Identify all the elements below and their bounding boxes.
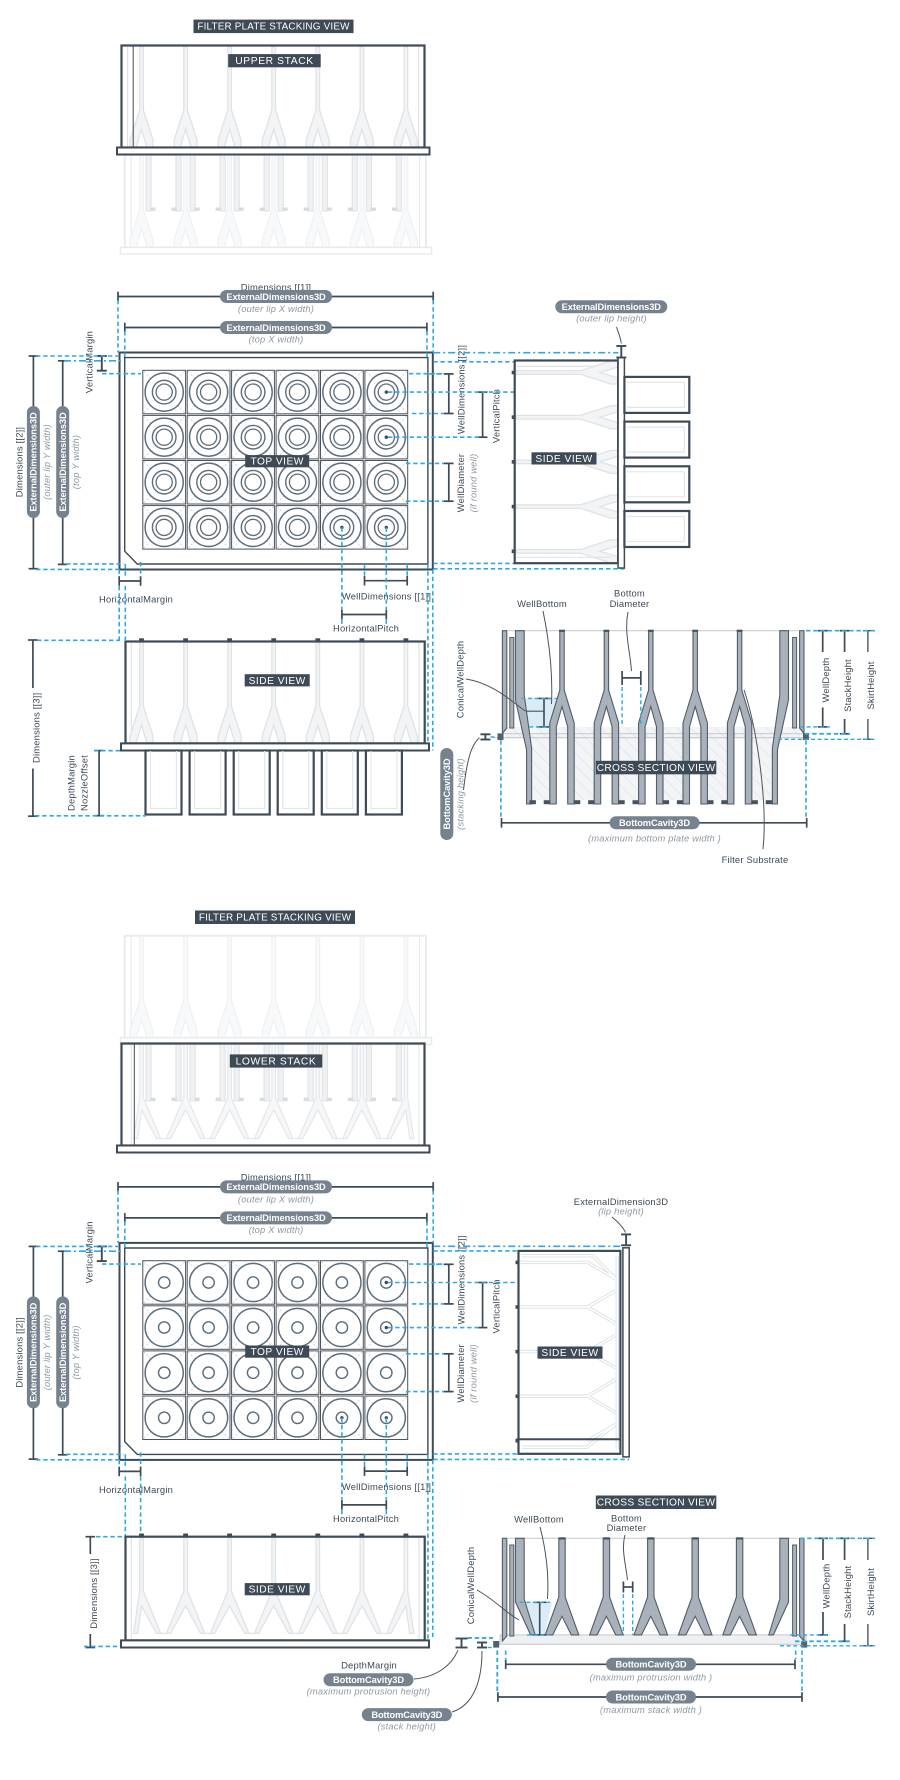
svg-text:WellBottom: WellBottom bbox=[514, 1514, 564, 1525]
svg-text:HorizontalPitch: HorizontalPitch bbox=[333, 623, 399, 634]
svg-text:(lip height): (lip height) bbox=[598, 1207, 644, 1217]
svg-text:Filter Substrate: Filter Substrate bbox=[722, 854, 789, 865]
svg-text:SIDE VIEW: SIDE VIEW bbox=[535, 454, 592, 465]
svg-text:VerticalPitch: VerticalPitch bbox=[490, 389, 501, 443]
svg-text:Dimensions [[3]]: Dimensions [[3]] bbox=[88, 1558, 99, 1628]
svg-text:BottomCavity3D: BottomCavity3D bbox=[442, 758, 452, 829]
svg-text:TOP VIEW: TOP VIEW bbox=[250, 1347, 303, 1358]
svg-text:DepthMargin: DepthMargin bbox=[66, 755, 77, 811]
svg-text:(top X width): (top X width) bbox=[249, 1225, 304, 1235]
svg-text:Diameter: Diameter bbox=[610, 598, 650, 609]
svg-text:WellDepth: WellDepth bbox=[820, 658, 831, 703]
svg-text:LOWER STACK: LOWER STACK bbox=[236, 1057, 317, 1068]
svg-text:ExternalDimension3D: ExternalDimension3D bbox=[574, 1196, 668, 1207]
svg-text:ExternalDimensions3D: ExternalDimensions3D bbox=[226, 323, 326, 333]
svg-text:VerticalMargin: VerticalMargin bbox=[84, 1221, 95, 1283]
svg-text:(outer lip Y width): (outer lip Y width) bbox=[42, 424, 52, 500]
svg-text:SIDE VIEW: SIDE VIEW bbox=[249, 676, 306, 687]
svg-text:ExternalDimensions3D: ExternalDimensions3D bbox=[562, 302, 662, 312]
svg-text:BottomCavity3D: BottomCavity3D bbox=[616, 1692, 687, 1702]
svg-text:ExternalDimensions3D: ExternalDimensions3D bbox=[58, 412, 68, 512]
svg-text:UPPER STACK: UPPER STACK bbox=[235, 56, 314, 67]
svg-text:(top Y width): (top Y width) bbox=[71, 435, 81, 489]
svg-text:SIDE VIEW: SIDE VIEW bbox=[249, 1585, 306, 1596]
svg-text:Bottom: Bottom bbox=[614, 587, 645, 598]
svg-text:WellDimensions [[2]]: WellDimensions [[2]] bbox=[456, 345, 467, 434]
svg-text:(stacking height): (stacking height) bbox=[455, 758, 465, 830]
svg-text:Diameter: Diameter bbox=[607, 1522, 647, 1533]
svg-text:WellDiameter: WellDiameter bbox=[455, 1344, 466, 1403]
svg-text:CROSS SECTION VIEW: CROSS SECTION VIEW bbox=[597, 763, 716, 774]
svg-text:BottomCavity3D: BottomCavity3D bbox=[616, 1660, 687, 1670]
svg-text:BottomCavity3D: BottomCavity3D bbox=[619, 818, 690, 828]
svg-text:StackHeight: StackHeight bbox=[842, 659, 853, 712]
svg-text:NozzleOffset: NozzleOffset bbox=[79, 755, 90, 811]
svg-text:(outer lip height): (outer lip height) bbox=[576, 314, 647, 324]
svg-text:ExternalDimensions3D: ExternalDimensions3D bbox=[226, 1213, 326, 1223]
svg-text:WellDimensions [[2]]: WellDimensions [[2]] bbox=[456, 1235, 467, 1324]
svg-text:BottomCavity3D: BottomCavity3D bbox=[371, 1710, 442, 1720]
svg-text:Dimensions [[3]]: Dimensions [[3]] bbox=[31, 693, 42, 763]
svg-text:ConicalWellDepth: ConicalWellDepth bbox=[465, 1547, 476, 1625]
svg-text:CROSS SECTION VIEW: CROSS SECTION VIEW bbox=[597, 1498, 716, 1509]
svg-text:Dimensions [[2]]: Dimensions [[2]] bbox=[14, 427, 25, 497]
svg-text:(maximum protrusion width ): (maximum protrusion width ) bbox=[590, 1672, 713, 1682]
svg-text:ExternalDimensions3D: ExternalDimensions3D bbox=[226, 1182, 326, 1192]
svg-text:VerticalPitch: VerticalPitch bbox=[490, 1279, 501, 1333]
svg-text:SkirtHeight: SkirtHeight bbox=[865, 1568, 876, 1616]
svg-text:TOP VIEW: TOP VIEW bbox=[250, 457, 303, 468]
svg-text:(outer lip Y width): (outer lip Y width) bbox=[42, 1314, 52, 1390]
svg-text:ExternalDimensions3D: ExternalDimensions3D bbox=[58, 1302, 68, 1402]
svg-text:HorizontalMargin: HorizontalMargin bbox=[99, 1484, 173, 1495]
svg-text:DepthMargin: DepthMargin bbox=[341, 1660, 397, 1671]
svg-text:(outer lip X width): (outer lip X width) bbox=[238, 1194, 314, 1204]
svg-text:HorizontalPitch: HorizontalPitch bbox=[333, 1513, 399, 1524]
svg-text:WellDiameter: WellDiameter bbox=[455, 454, 466, 513]
svg-text:StackHeight: StackHeight bbox=[842, 1565, 853, 1618]
svg-text:WellBottom: WellBottom bbox=[517, 598, 567, 609]
svg-text:SIDE VIEW: SIDE VIEW bbox=[541, 1348, 598, 1359]
svg-text:(stack height): (stack height) bbox=[377, 1722, 436, 1732]
svg-text:FILTER PLATE STACKING VIEW: FILTER PLATE STACKING VIEW bbox=[199, 913, 352, 924]
svg-text:(if round well): (if round well) bbox=[469, 454, 479, 513]
svg-text:WellDepth: WellDepth bbox=[820, 1564, 831, 1609]
svg-text:ExternalDimensions3D: ExternalDimensions3D bbox=[29, 412, 39, 512]
svg-text:(maximum stack width ): (maximum stack width ) bbox=[600, 1705, 702, 1715]
svg-text:FILTER PLATE STACKING VIEW: FILTER PLATE STACKING VIEW bbox=[197, 22, 350, 33]
svg-text:HorizontalMargin: HorizontalMargin bbox=[99, 594, 173, 605]
svg-text:(top X width): (top X width) bbox=[249, 335, 304, 345]
svg-text:(maximum bottom plate width ): (maximum bottom plate width ) bbox=[588, 834, 721, 844]
svg-text:(maximum protrusion height): (maximum protrusion height) bbox=[307, 1687, 431, 1697]
svg-text:(outer lip X width): (outer lip X width) bbox=[238, 304, 314, 314]
svg-text:Dimensions [[2]]: Dimensions [[2]] bbox=[14, 1317, 25, 1387]
svg-text:(top Y width): (top Y width) bbox=[71, 1325, 81, 1379]
svg-text:ConicalWellDepth: ConicalWellDepth bbox=[454, 641, 465, 719]
svg-text:ExternalDimensions3D: ExternalDimensions3D bbox=[226, 292, 326, 302]
svg-text:VerticalMargin: VerticalMargin bbox=[84, 331, 95, 393]
svg-text:ExternalDimensions3D: ExternalDimensions3D bbox=[29, 1302, 39, 1402]
svg-text:(if round well): (if round well) bbox=[469, 1344, 479, 1403]
svg-text:BottomCavity3D: BottomCavity3D bbox=[333, 1675, 404, 1685]
svg-text:SkirtHeight: SkirtHeight bbox=[865, 661, 876, 709]
